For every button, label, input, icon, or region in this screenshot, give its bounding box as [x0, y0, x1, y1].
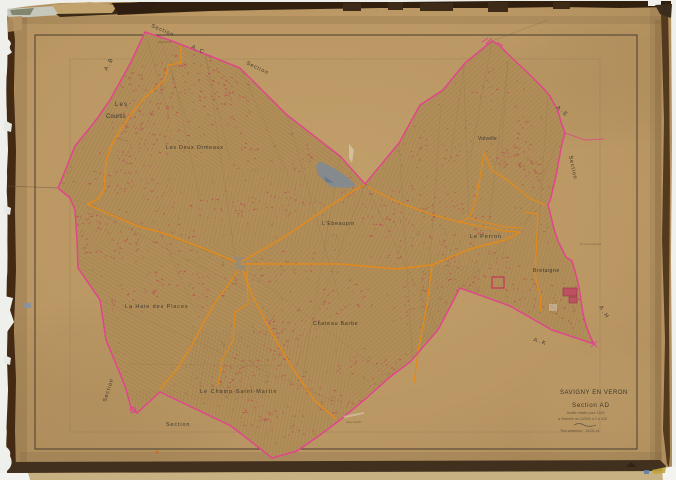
svg-text:SAVIGNY EN VERON: SAVIGNY EN VERON [560, 390, 628, 396]
svg-text:a l'echelle du 1/2500 n 1 a 3: a l'echelle du 1/2500 n 1 a 328 [558, 417, 607, 421]
svg-text:Le Perron: Le Perron [470, 234, 502, 240]
svg-text:Bretaigne: Bretaigne [533, 268, 560, 274]
svg-text:Chateau Barbe: Chateau Barbe [313, 321, 358, 327]
svg-text:Le Champ Saint-Martin: Le Champ Saint-Martin [200, 389, 277, 395]
svg-text:Volvelle: Volvelle [478, 136, 497, 142]
svg-text:Les Deux Ormeaux: Les Deux Ormeaux [166, 145, 224, 151]
svg-text:Section: Section [166, 422, 190, 428]
svg-text:ch. de la fontaine: ch. de la fontaine [580, 242, 602, 246]
svg-text:vieux moulin: vieux moulin [346, 420, 362, 424]
svg-text:Courtis: Courtis [106, 114, 126, 120]
svg-text:Chemin de: Chemin de [158, 40, 172, 44]
svg-text:L'Ebeaupin: L'Ebeaupin [322, 221, 355, 227]
svg-text:Tres anterieur : 19-09-41: Tres anterieur : 19-09-41 [560, 429, 600, 433]
svg-text:Les: Les [115, 102, 128, 108]
svg-text:La Haie des Places: La Haie des Places [125, 304, 189, 310]
svg-text:Section AD: Section AD [572, 402, 610, 409]
svg-text:feuille refaite pour 1933: feuille refaite pour 1933 [567, 411, 605, 415]
